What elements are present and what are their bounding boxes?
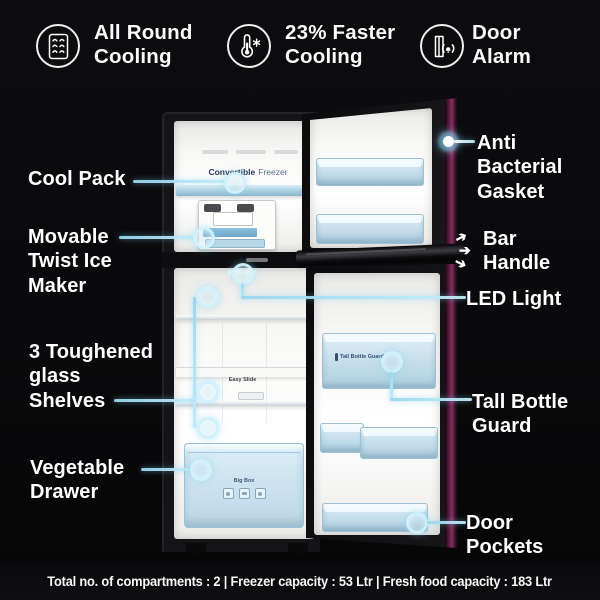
label-bar-handle: Bar Handle [483, 227, 550, 276]
drawer-lip [188, 452, 300, 453]
fridge-door-gasket [445, 264, 458, 548]
spec-footer-bar: Total no. of compartments : 2 | Freezer … [0, 563, 600, 600]
freezer-door-bin [316, 214, 424, 244]
callout-connector-bottle-guard [390, 372, 393, 400]
tall-bottle-guard-bin-label: Tall Bottle Guard [335, 353, 384, 361]
callout-line-led-light [241, 296, 466, 299]
freezer-door-liner [310, 108, 432, 248]
callout-line-cool-pack [133, 180, 226, 183]
label-bottle-guard: Tall Bottle Guard [472, 390, 568, 439]
freezer-back-emboss [202, 150, 228, 154]
label-door-pockets: Door Pockets [466, 511, 543, 560]
divider-vent [246, 258, 268, 262]
callout-line-ice-maker [119, 236, 195, 239]
callout-ring-vegetable-drawer [190, 459, 212, 481]
callout-ring-shelf-1 [197, 286, 219, 308]
vent-grille-icon [47, 33, 70, 60]
all-round-cooling-badge [36, 24, 80, 68]
fridge-door-liner: Tall Bottle Guard [314, 273, 440, 535]
thermometer-snowflake-icon [236, 33, 263, 60]
veggie-icon [255, 488, 266, 499]
label-led-light: LED Light [466, 287, 561, 311]
door-alarm-badge [420, 24, 464, 68]
callout-ring-bottle-guard [381, 351, 403, 373]
callout-line-vegetable-drawer [141, 468, 193, 471]
freezer-door-open [302, 96, 458, 254]
freezer-door-bin [316, 158, 424, 186]
bottle-icon [335, 353, 338, 361]
veggie-icon [239, 488, 250, 499]
label-ice-maker: Movable Twist Ice Maker [28, 225, 112, 298]
callout-line-gasket [454, 140, 475, 143]
door-bottle-bin [320, 423, 364, 453]
ice-maker-tray [213, 212, 253, 226]
faster-cooling-badge [227, 24, 271, 68]
ice-maker-knob [204, 204, 221, 212]
door-alarm-icon [429, 33, 456, 60]
feature-door-alarm-label: Door Alarm [472, 21, 531, 69]
convertible-freezer-label: ConvertibleFreezer [188, 167, 308, 177]
glass-shelf-3 [176, 401, 313, 406]
callout-ring-led-light [232, 263, 254, 285]
ice-maker-knob [237, 204, 254, 212]
drawer-icon-row [185, 488, 303, 499]
callout-ring-door-pockets [406, 512, 428, 534]
glass-shelf-1 [176, 315, 313, 320]
feature-all-round-cooling-label: All Round Cooling [94, 21, 193, 69]
callout-ring-ice-maker [193, 227, 215, 249]
door-bottle-bin [360, 427, 438, 459]
feature-faster-cooling-label: 23% Faster Cooling [285, 21, 395, 69]
fridge-door-open: Tall Bottle Guard [306, 264, 458, 548]
tall-bottle-guard-bin: Tall Bottle Guard [322, 333, 436, 389]
callout-dot-gasket [443, 136, 454, 147]
deodorizer-badge [238, 392, 264, 400]
callout-line-bottle-guard [390, 398, 472, 401]
freezer-back-emboss [236, 150, 266, 154]
handle-highlight [306, 248, 426, 255]
freezer-back-emboss [274, 150, 298, 154]
label-cool-pack: Cool Pack [28, 167, 126, 191]
label-gasket: Anti Bacterial Gasket [477, 131, 562, 204]
spec-footer-text: Total no. of compartments : 2 | Freezer … [48, 574, 553, 589]
product-infographic: All Round Cooling 23% Faster Cooling [0, 0, 600, 600]
easy-slide-label: Easy Slide [229, 377, 257, 383]
callout-ring-cool-pack [224, 172, 246, 194]
fridge-foot [288, 543, 308, 553]
label-vegetable-drawer: Vegetable Drawer [30, 456, 124, 505]
veggie-icon [223, 488, 234, 499]
callout-connector-shelves [193, 297, 196, 428]
vegetable-drawer: Big Box [184, 443, 304, 528]
callout-ring-shelf-2 [197, 381, 219, 403]
fridge-foot [186, 543, 206, 553]
label-shelves: 3 Toughened glass Shelves [29, 340, 153, 413]
callout-line-door-pockets [427, 521, 466, 524]
callout-ring-shelf-3 [197, 417, 219, 439]
